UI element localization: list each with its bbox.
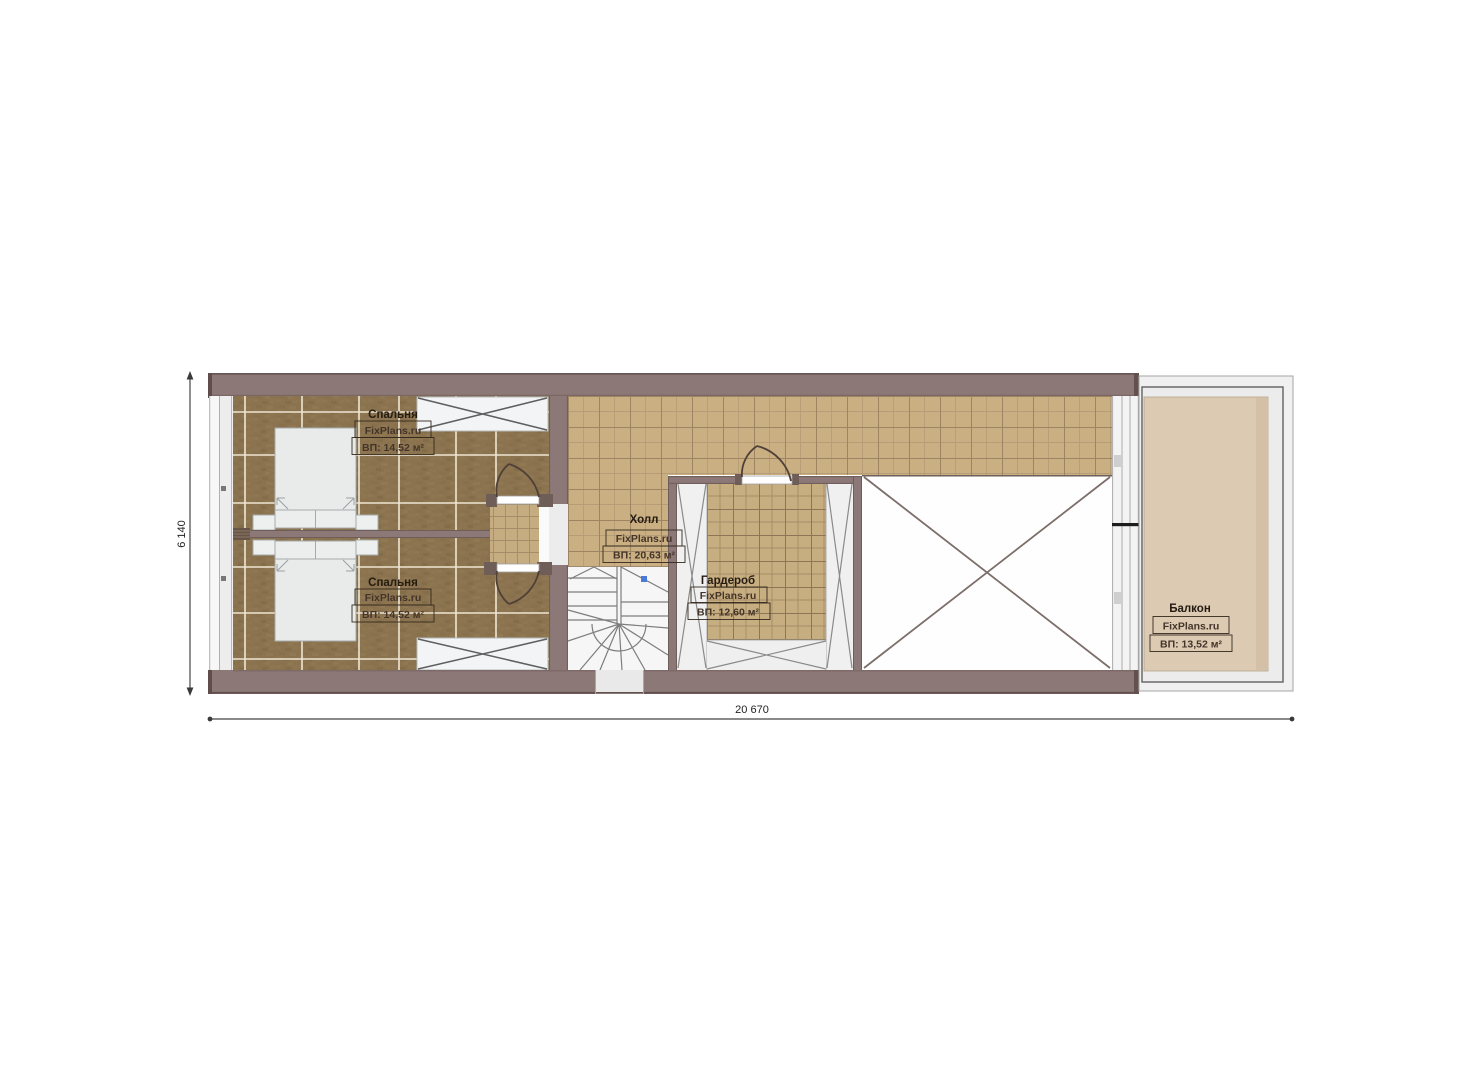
svg-text:FixPlans.ru: FixPlans.ru (365, 592, 422, 604)
svg-text:Спальня: Спальня (368, 409, 418, 421)
svg-text:FixPlans.ru: FixPlans.ru (700, 590, 757, 602)
svg-text:FixPlans.ru: FixPlans.ru (616, 533, 673, 545)
svg-text:ВП: 14,52 м²: ВП: 14,52 м² (362, 609, 425, 621)
svg-text:Спальня: Спальня (368, 577, 418, 589)
svg-text:FixPlans.ru: FixPlans.ru (1163, 621, 1220, 633)
svg-text:ВП: 13,52 м²: ВП: 13,52 м² (1160, 639, 1223, 651)
svg-text:Балкон: Балкон (1169, 603, 1211, 615)
svg-text:ВП: 20,63 м²: ВП: 20,63 м² (613, 550, 676, 562)
svg-text:ВП: 14,52 м²: ВП: 14,52 м² (362, 442, 425, 454)
svg-text:Холл: Холл (630, 514, 659, 526)
svg-text:Гардероб: Гардероб (701, 575, 755, 587)
svg-text:ВП: 12,60 м²: ВП: 12,60 м² (697, 607, 760, 619)
svg-text:20 670: 20 670 (735, 704, 769, 716)
svg-text:6 140: 6 140 (176, 520, 188, 548)
svg-text:FixPlans.ru: FixPlans.ru (365, 425, 422, 437)
